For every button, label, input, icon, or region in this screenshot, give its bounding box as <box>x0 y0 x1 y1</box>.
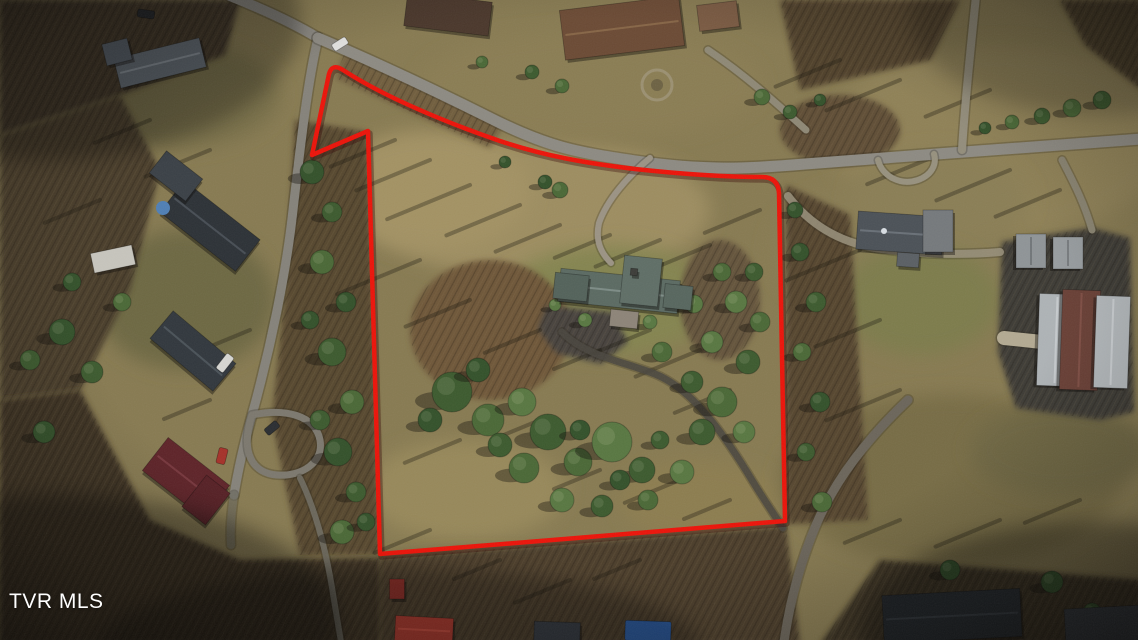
mls-watermark: TVR MLS <box>9 590 104 614</box>
film-grain <box>0 0 1138 640</box>
aerial-photo: TVR MLS <box>0 0 1138 640</box>
aerial-scene <box>0 0 1138 640</box>
